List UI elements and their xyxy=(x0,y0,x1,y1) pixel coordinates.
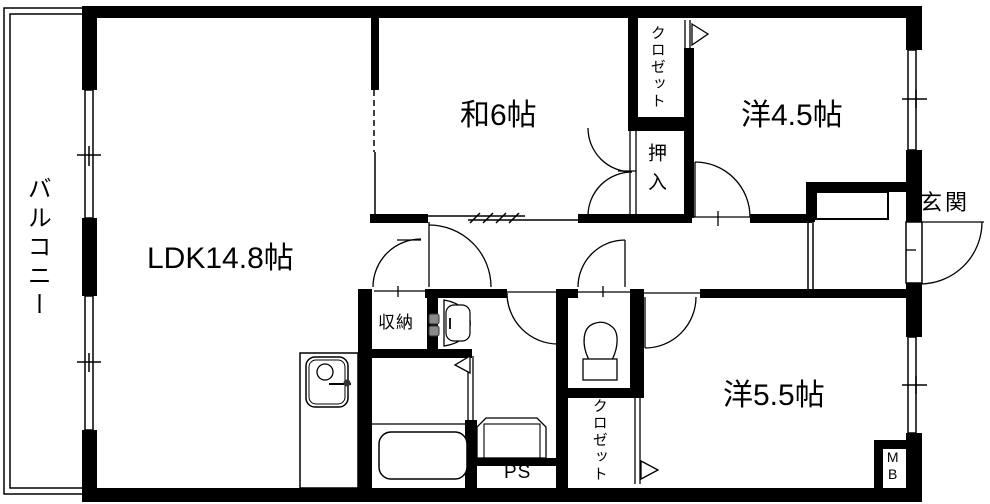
room-label-balcony: バルコニー xyxy=(24,176,49,321)
door-western55 xyxy=(645,297,696,348)
window-western55 xyxy=(902,337,927,433)
room-label-closet-south: クロゼット xyxy=(591,398,607,483)
sliding-door-washitsu-hall xyxy=(428,213,578,223)
door-ldk-hall xyxy=(429,222,491,287)
shoe-cabinet xyxy=(816,192,888,219)
room-label-pipe-space: PS xyxy=(504,463,531,483)
washing-machine-pan-icon xyxy=(477,418,546,458)
room-label-japanese-room: 和6帖 xyxy=(460,100,537,132)
window-ldk-lower xyxy=(77,296,101,430)
entrance-step-edge xyxy=(808,218,813,289)
room-label-entrance: 玄関 xyxy=(920,191,970,214)
door-washroom xyxy=(507,293,558,344)
door-closet-south-folding xyxy=(635,398,658,484)
window-ldk-upper xyxy=(77,90,101,218)
room-label-storage: 収納 xyxy=(378,314,414,332)
room-label-closet-north: クロゼット xyxy=(649,25,665,110)
room-label-meter-box: MB xyxy=(885,449,900,483)
doors xyxy=(373,20,984,484)
door-oshiire-double xyxy=(588,127,636,217)
door-bathroom-folding xyxy=(455,356,473,420)
room-label-western-4-5: 洋4.5帖 xyxy=(741,100,843,132)
bathtub-icon xyxy=(372,424,467,479)
window-western45 xyxy=(902,50,927,150)
doorway-thresholds xyxy=(374,211,750,297)
sliding-door-ldk-washitsu xyxy=(374,90,375,215)
door-western45 xyxy=(695,162,750,217)
room-label-ldk: LDK14.8帖 xyxy=(147,243,294,275)
door-toilet xyxy=(578,240,625,287)
toilet-icon xyxy=(583,322,617,380)
door-closet-north-folding xyxy=(685,20,708,48)
room-label-western-5-5: 洋5.5帖 xyxy=(723,380,825,412)
floor-plan: バルコニー LDK14.8帖 和6帖 洋4.5帖 洋5.5帖 玄関 クロゼット … xyxy=(0,0,990,504)
room-label-oshiire: 押入 xyxy=(645,143,665,201)
door-storage xyxy=(373,239,421,287)
door-entrance xyxy=(906,222,984,284)
